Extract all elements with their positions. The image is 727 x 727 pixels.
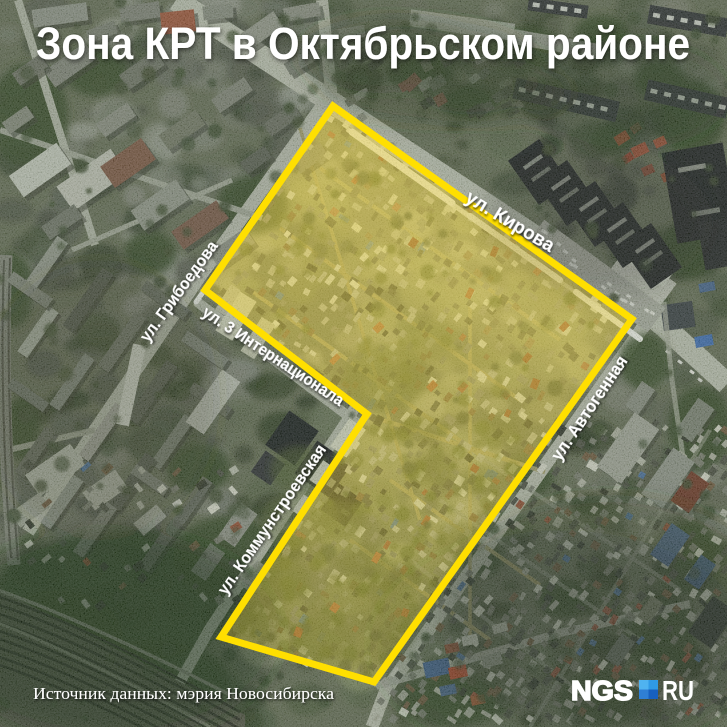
svg-text:RU: RU — [662, 675, 694, 706]
svg-text:Источник данных: мэрия Новосиб: Источник данных: мэрия Новосибирска — [33, 684, 334, 703]
svg-text:Зона КРТ в Октябрьском районе: Зона КРТ в Октябрьском районе — [36, 18, 690, 69]
svg-text:NGS: NGS — [571, 675, 633, 706]
